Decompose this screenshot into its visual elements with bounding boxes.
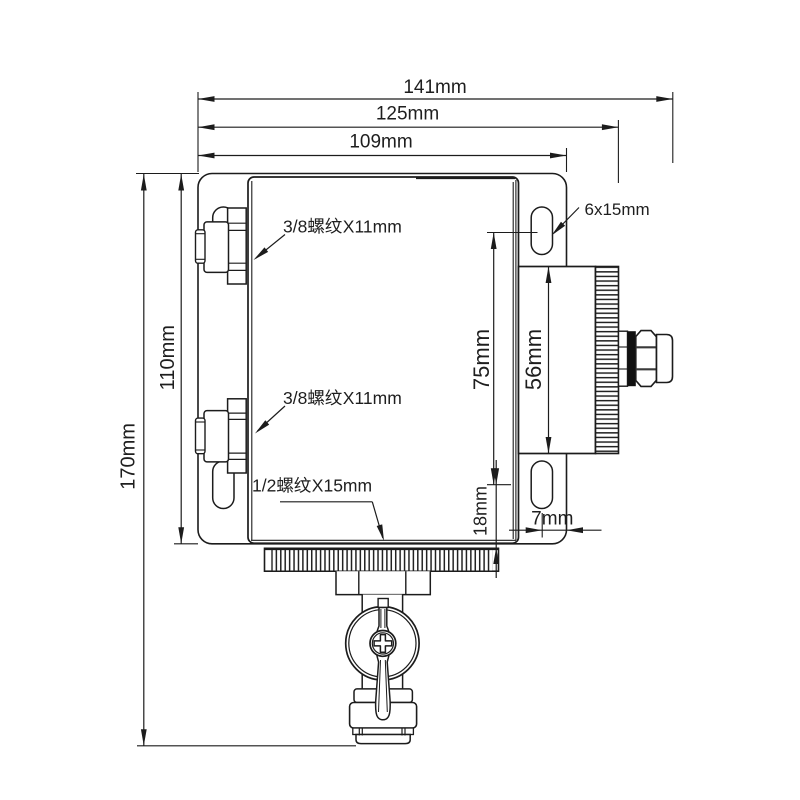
svg-text:X11mm: X11mm: [343, 388, 402, 408]
svg-text:141mm: 141mm: [403, 77, 466, 98]
svg-text:1/2: 1/2: [252, 476, 276, 496]
svg-text:56mm: 56mm: [521, 329, 546, 390]
svg-text:109mm: 109mm: [349, 132, 412, 153]
svg-text:125mm: 125mm: [376, 104, 439, 125]
svg-text:X11mm: X11mm: [343, 216, 402, 236]
svg-text:3/8: 3/8: [283, 388, 307, 408]
svg-text:170mm: 170mm: [117, 423, 139, 490]
svg-text:7mm: 7mm: [531, 508, 573, 529]
svg-text:6x15mm: 6x15mm: [585, 200, 650, 219]
svg-text:75mm: 75mm: [469, 329, 494, 390]
svg-text:3/8: 3/8: [283, 216, 307, 236]
svg-text:110mm: 110mm: [157, 325, 179, 390]
svg-text:18mm: 18mm: [470, 486, 490, 536]
svg-text:X15mm: X15mm: [312, 476, 372, 496]
